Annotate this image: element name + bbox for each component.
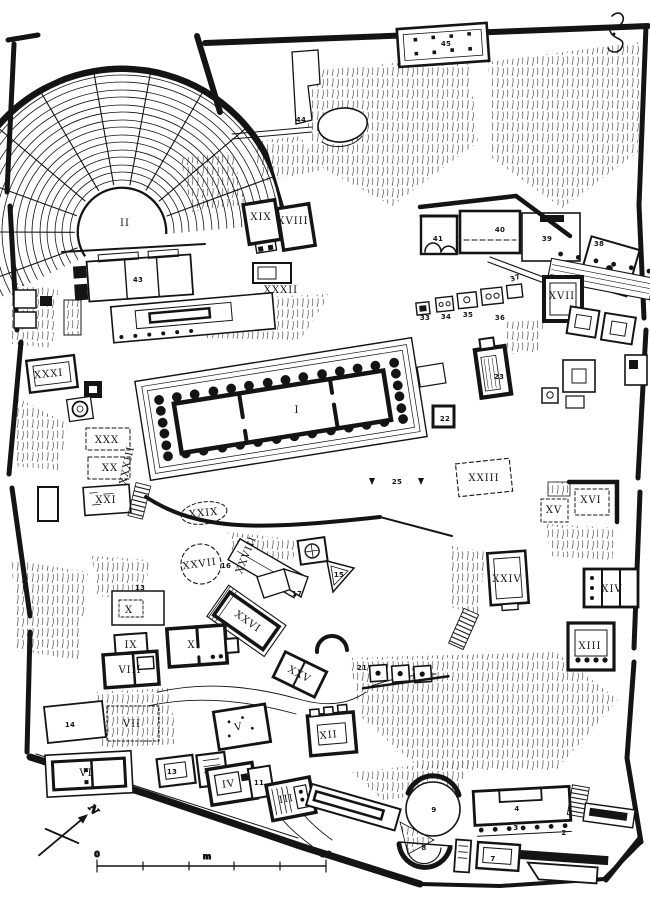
scale-zero: 0 (94, 850, 100, 859)
pillar-monument-23 (473, 336, 511, 398)
map-label-XXXII: XXXII (264, 285, 298, 296)
round-monument (67, 396, 94, 421)
map-label-25: 25 (392, 478, 402, 486)
map-label-XXVII: XXVII (182, 557, 218, 573)
map-label-XIV: XIV (601, 584, 622, 595)
map-label-XII: XII (319, 729, 338, 742)
map-label-36: 36 (495, 314, 505, 322)
site-plan-map: N 0 m 50 IIIXIXXVIIIXXXIIXVIIXXXIXXXXXXX… (0, 0, 650, 902)
map-label-43: 43 (133, 276, 143, 284)
scale-unit: m (203, 852, 211, 861)
map-label-34: 34 (441, 313, 451, 321)
map-label-8: 8 (421, 844, 426, 852)
map-label-XVI: XVI (580, 495, 601, 506)
building-4 (473, 786, 571, 836)
map-label-13: 13 (167, 768, 177, 776)
map-label-XV: XV (546, 505, 562, 516)
map-label-11: 11 (254, 779, 264, 787)
lower-complex (454, 840, 609, 885)
map-label-XXIII: XXIII (468, 473, 499, 484)
map-label-21: 21 (357, 664, 367, 672)
building-x (112, 591, 164, 625)
monument-black-square (84, 381, 102, 398)
east-buildings (566, 306, 636, 344)
platform-above-xv (548, 482, 570, 496)
map-label-15: 15 (334, 571, 344, 579)
north-letter: N (85, 802, 100, 817)
map-label-41: 41 (433, 235, 443, 243)
map-label-14: 14 (65, 721, 75, 729)
map-label-33: 33 (420, 314, 430, 322)
pier-block (64, 300, 81, 335)
map-label-XX: XX (102, 463, 118, 474)
map-label-9: 9 (431, 806, 436, 814)
scale-bar: 0 m 50 (94, 850, 332, 872)
map-label-44: 44 (296, 116, 306, 124)
map-label-40: 40 (495, 226, 505, 234)
map-label-39: 39 (542, 235, 552, 243)
map-label-VI: VI (78, 768, 92, 779)
stairway-east (449, 608, 479, 649)
map-label-XI: XI (187, 640, 200, 651)
exedra-semicircle (317, 636, 347, 652)
map-label-X: X (125, 605, 133, 616)
map-label-XXX: XXX (95, 435, 119, 446)
map-label-13: 13 (135, 584, 145, 592)
map-label-V: V (233, 721, 244, 733)
right-edge-buildings (563, 355, 647, 408)
map-label-XXXIII: XXXIII (118, 445, 137, 486)
map-label-XVII: XVII (549, 291, 575, 302)
map-label-22: 22 (440, 415, 450, 423)
map-label-I: I (295, 405, 300, 416)
map-label-16: 16 (221, 562, 231, 570)
map-label-IX: IX (124, 640, 137, 651)
fountain-house (298, 537, 328, 565)
scale-end: 50 (320, 850, 332, 859)
map-label-IV: IV (221, 778, 236, 791)
west-gate-room (38, 487, 58, 521)
map-label-3: 3 (513, 824, 518, 832)
map-label-35: 35 (463, 311, 473, 319)
map-label-23: 23 (494, 373, 504, 381)
map-label-7: 7 (490, 855, 495, 863)
map-label-VII: VII (122, 719, 141, 730)
map-label-2: 2 (561, 829, 566, 837)
map-label-XXIV: XXIV (492, 574, 521, 585)
building-black-bar (583, 803, 635, 828)
map-label-4: 4 (514, 805, 519, 813)
building-40 (460, 211, 520, 253)
stairway-west (128, 483, 151, 520)
map-label-17: 17 (292, 590, 302, 598)
map-label-XXIX: XXIX (189, 507, 219, 521)
map-label-XVIII: XVIII (277, 216, 308, 227)
site-plan-page: N 0 m 50 IIIXIXXVIIIXXXIIXVIIXXXIXXXXXXX… (0, 0, 650, 902)
map-label-XXI: XXI (95, 495, 116, 506)
building-xxxii (253, 263, 291, 283)
temple-ramp (417, 363, 446, 387)
map-label-XIX: XIX (250, 212, 271, 223)
map-label-VIII: VIII (117, 665, 141, 676)
map-label-38: 38 (594, 240, 604, 248)
map-label-II: II (120, 218, 130, 229)
map-label-45: 45 (441, 40, 451, 48)
small-monument-east (542, 388, 558, 403)
map-label-XIII: XIII (579, 641, 602, 652)
